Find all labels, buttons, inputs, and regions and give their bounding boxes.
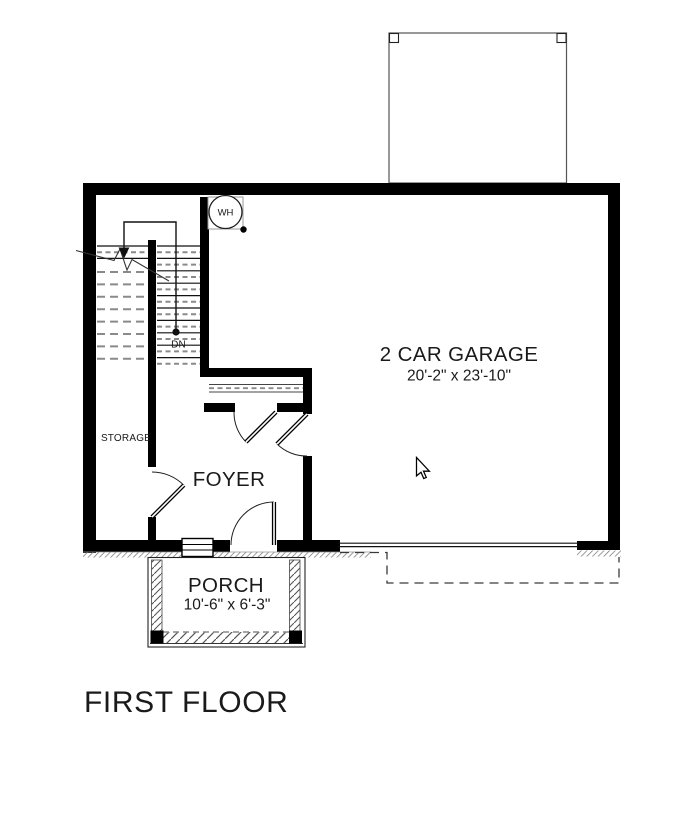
closet-door-swing-arc (234, 412, 246, 442)
slab-corner-post-right (557, 34, 566, 43)
wall-closet-bottom-left (204, 403, 235, 412)
garage-entry-door (277, 414, 307, 456)
front-entry-door-swing-arc (231, 502, 274, 545)
wall-foyer-garage-lower (303, 456, 312, 540)
wall-top (83, 183, 620, 195)
porch-label: PORCH (188, 574, 264, 597)
storage-door-swing-arc (152, 472, 184, 485)
wall-left (83, 183, 96, 553)
stair-treads-left-dashed (97, 272, 148, 359)
wall-closet-top (200, 368, 310, 377)
closet-shelf-rod (209, 385, 303, 393)
wall-front-foyer (277, 540, 340, 552)
floor-plan-drawing: DN WH (0, 0, 685, 827)
front-window (182, 539, 213, 557)
porch-column-right (290, 560, 301, 633)
water-heater-symbol: WH (208, 196, 247, 233)
wall-front-left (83, 540, 182, 552)
slab-corner-post-left (390, 34, 399, 43)
stair-direction-arrowhead (119, 248, 130, 259)
water-heater-connection-dot (240, 226, 246, 232)
storage-door (152, 472, 184, 517)
wall-garage-stub-right (577, 541, 608, 550)
foyer-label: FOYER (193, 468, 266, 491)
room-labels: 2 CAR GARAGE 20'-2" x 23'-10" FOYER STOR… (101, 343, 538, 614)
closet-door (234, 412, 276, 442)
stairs-down-label: DN (171, 340, 186, 351)
garage-entry-door-leaf-core (277, 414, 307, 444)
porch-post-left (151, 631, 164, 644)
mouse-cursor-icon (417, 458, 430, 479)
closet-door-leaf-core (246, 412, 276, 442)
wall-foyer-garage-upper (303, 368, 312, 414)
storage-label: STORAGE (101, 433, 151, 444)
storage-door-leaf-core (152, 485, 184, 517)
wall-front-mid (213, 540, 230, 552)
wall-foyer-left-lower (148, 517, 156, 540)
wall-right (608, 183, 620, 550)
foundation-band-front (83, 552, 371, 558)
driveway-apron-outline (340, 553, 619, 584)
stair-direction-start-dot (172, 328, 179, 335)
floor-plan-page: DN WH (0, 0, 685, 827)
front-window-frame (182, 539, 213, 557)
garage-entry-door-swing-arc (277, 444, 307, 456)
porch-dimensions: 10'-6" x 6'-3" (184, 597, 271, 614)
porch-post-right (289, 631, 302, 644)
garage-dimensions: 20'-2" x 23'-10" (407, 368, 511, 385)
garage-slab-pad (389, 33, 567, 183)
garage-label: 2 CAR GARAGE (380, 343, 539, 366)
exterior-walls (83, 183, 620, 553)
water-heater-label: WH (218, 208, 234, 219)
porch-column-left (152, 560, 163, 633)
foundation-band-right (577, 551, 621, 557)
porch-step-band (164, 632, 290, 643)
garage-overhead-door (338, 543, 578, 546)
plan-title: FIRST FLOOR (84, 686, 288, 719)
slab-pad-outline (389, 33, 567, 183)
front-entry-door (231, 502, 274, 545)
